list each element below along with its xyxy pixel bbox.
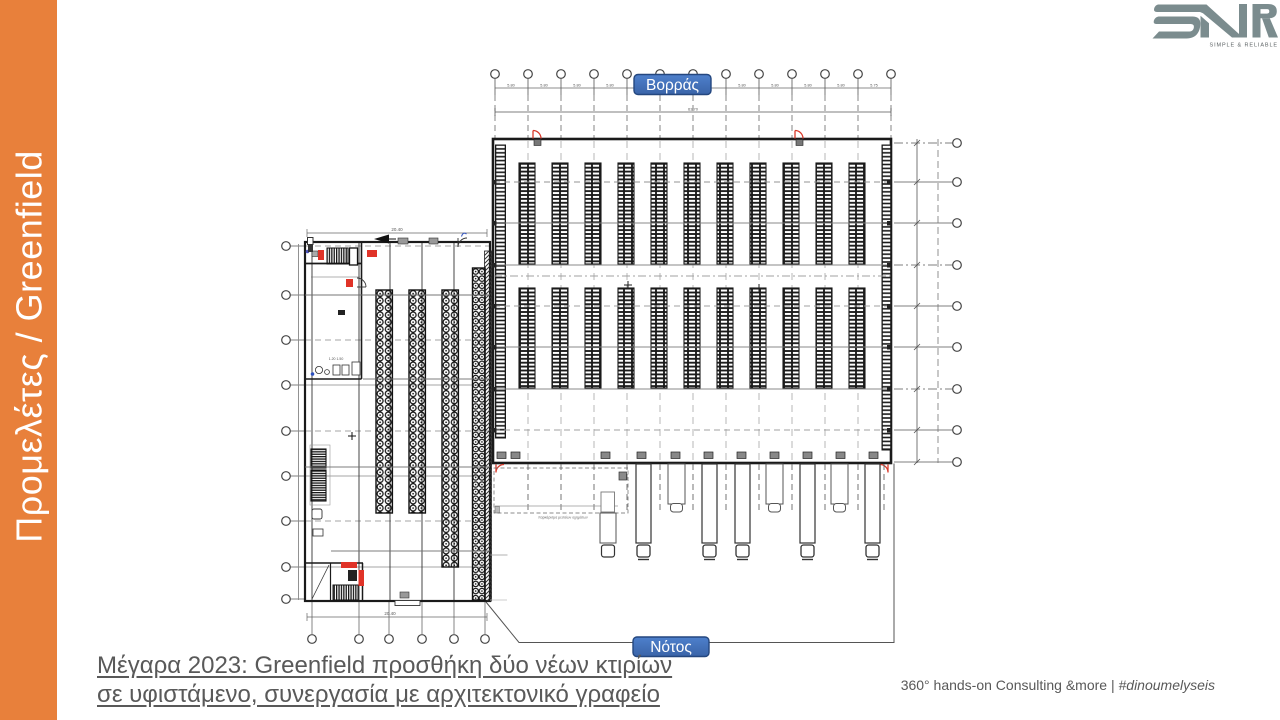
svg-text:5.80: 5.80 (738, 84, 745, 88)
svg-text:5.75: 5.75 (870, 84, 877, 88)
svg-text:5.80: 5.80 (837, 84, 844, 88)
svg-text:5.80: 5.80 (540, 84, 547, 88)
svg-text:5.80: 5.80 (771, 84, 778, 88)
svg-text:5.80: 5.80 (573, 84, 580, 88)
svg-text:1.20 1.50: 1.20 1.50 (329, 357, 344, 361)
svg-text:παρκάρισμα μεσαίων οχημάτων: παρκάρισμα μεσαίων οχημάτων (538, 516, 588, 520)
svg-text:20.40: 20.40 (384, 611, 396, 616)
svg-text:Βορράς: Βορράς (646, 77, 699, 94)
svg-text:63.70: 63.70 (688, 107, 699, 112)
svg-text:5.80: 5.80 (507, 84, 514, 88)
svg-text:5.80: 5.80 (804, 84, 811, 88)
svg-text:5.80: 5.80 (606, 84, 613, 88)
svg-text:20.40: 20.40 (391, 227, 403, 232)
